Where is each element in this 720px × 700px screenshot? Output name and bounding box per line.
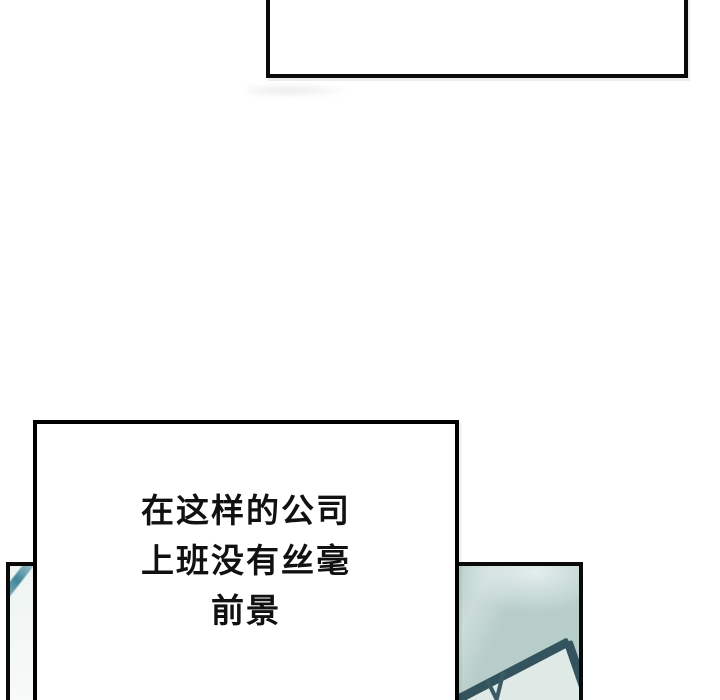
speech-line-2: 上班没有丝毫 — [37, 536, 455, 586]
speech-line-3: 前景 — [37, 586, 455, 636]
empty-top-panel — [266, 0, 688, 78]
comic-page: 在这样的公司 上班没有丝毫 前景 — [0, 0, 720, 700]
panel-shadow-smudge — [246, 83, 354, 98]
speech-line-1: 在这样的公司 — [37, 486, 455, 536]
speech-bubble: 在这样的公司 上班没有丝毫 前景 — [33, 420, 459, 700]
